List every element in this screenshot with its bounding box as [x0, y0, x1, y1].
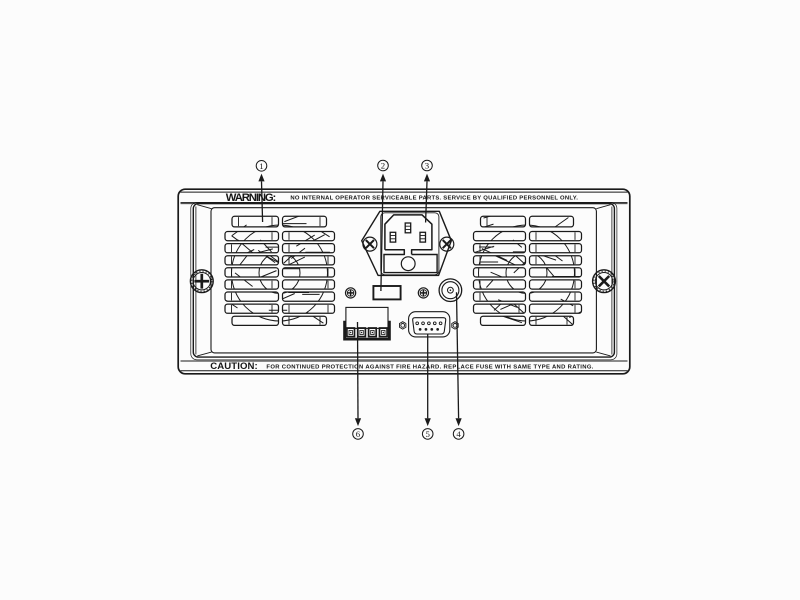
svg-text:FOR CONTINUED PROTECTION AGAIN: FOR CONTINUED PROTECTION AGAINST FIRE HA… — [266, 364, 593, 370]
svg-text:NO INTERNAL OPERATOR SERVICEAB: NO INTERNAL OPERATOR SERVICEABLE PARTS. … — [290, 196, 578, 202]
svg-text:3: 3 — [425, 161, 430, 171]
svg-text:4: 4 — [456, 429, 461, 439]
svg-text:6: 6 — [356, 429, 361, 439]
svg-text:1: 1 — [259, 161, 263, 171]
svg-text:5: 5 — [425, 429, 430, 439]
svg-text:2: 2 — [381, 161, 385, 171]
